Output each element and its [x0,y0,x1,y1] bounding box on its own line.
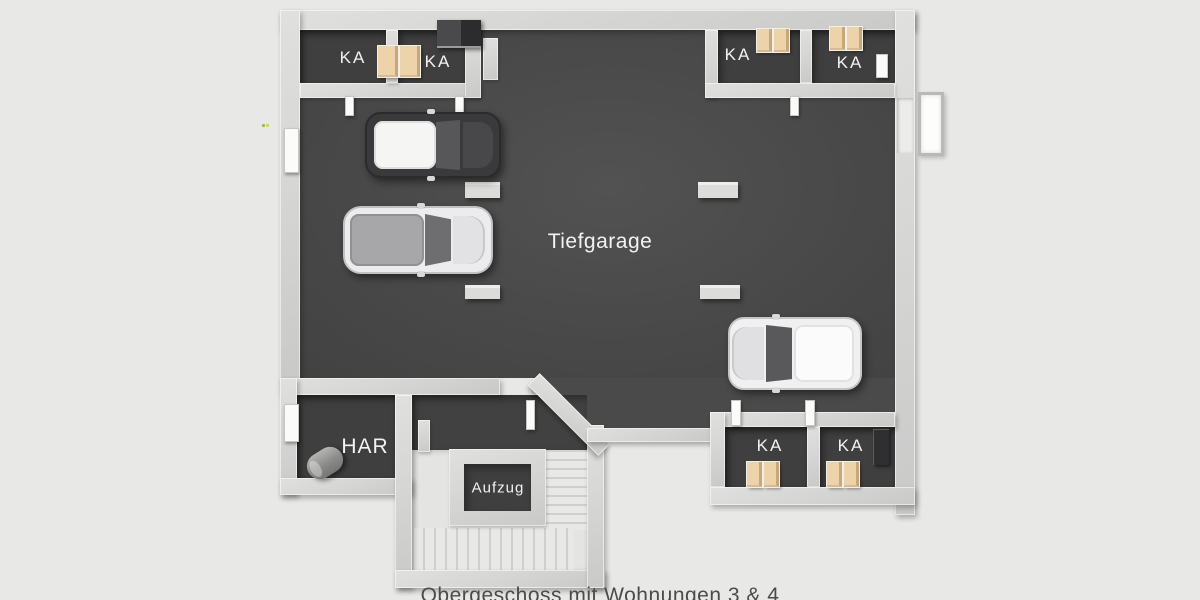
utility-unit [437,20,481,48]
wall-ka-tr-partition [800,30,812,83]
crate [844,462,859,487]
stairs-bottom-run [414,528,574,570]
door-har [284,404,299,442]
car-mirror [417,203,425,208]
parking-divider-2 [698,182,738,198]
room-label-ka-bottom-2: KA [838,436,865,456]
door-ka-tr-2 [876,54,888,78]
garage-gate-opening [897,98,913,153]
room-label-ka-top-right-1: KA [725,45,752,65]
crate [400,46,420,77]
wall-vestibule-jamb [418,420,430,452]
crate [747,462,762,487]
room-label-har: HAR [341,435,388,459]
wall-stair-left [395,395,412,588]
wall-ka-br-bottom [710,487,915,505]
crate [764,462,779,487]
wall-har-top-left-segment [280,378,500,395]
wall-ka-tl-bottom [300,83,481,98]
room-label-aufzug: Aufzug [472,480,525,497]
wall-har-bottom [280,478,412,495]
room-label-ka-top-left-2: KA [425,52,452,72]
utility-unit-panel [461,20,481,46]
car-hood [453,216,485,264]
crate [830,27,845,50]
car-roof [794,325,854,382]
wall-ka-br-left [710,412,725,487]
room-label-ka-top-right-2: KA [837,53,864,73]
car-roof [350,214,424,266]
car-mirror [427,176,435,181]
car-windshield [436,120,460,170]
wall-stub-top-left [483,38,498,80]
crate [757,29,772,52]
crate [378,46,398,77]
crate [774,29,789,52]
floorplan-canvas: KA KA KA KA HAR Aufzug KA KA Tiefgarage … [0,0,1200,600]
garage-gate-panel [918,92,944,156]
wall-right [895,10,915,515]
wall-left [280,10,300,380]
room-label-ka-top-left-1: KA [340,48,367,68]
car-dark-white-roof [365,112,501,178]
car-silver-suv [343,206,493,274]
floor-caption: Obergeschoss mit Wohnungen 3 & 4 [421,584,780,600]
wall-ka-br-partition [807,427,820,487]
stairs-right-run [546,452,587,530]
wall-ka-tr-bottom [705,83,895,98]
wall-top [280,10,915,30]
parking-divider-4 [700,285,740,299]
artifact-dot-green [262,124,265,127]
parking-divider-1 [465,182,500,198]
room-label-ka-bottom-1: KA [757,436,784,456]
wall-garage-bottom-mid [587,428,712,442]
car-mirror [427,109,435,114]
car-mirror [772,314,780,319]
car-hood [463,122,493,168]
car-white [728,317,862,390]
car-hood [732,327,764,380]
car-mirror [772,388,780,393]
artifact-dot-yellow [266,124,269,127]
crate [847,27,862,50]
car-roof [374,121,436,169]
door-vestibule [526,400,535,430]
garage-title: Tiefgarage [548,230,653,254]
parking-divider-3 [465,285,500,299]
door-left-wall [284,128,299,173]
crate [827,462,842,487]
door-ka-tr-1 [790,96,799,116]
car-mirror [417,272,425,277]
door-ka-br-1 [731,400,741,426]
electrical-cabinet [873,429,889,465]
car-windshield [425,214,451,266]
car-windshield [766,325,792,382]
door-ka-br-2 [805,400,815,426]
door-ka-tl-1 [345,96,354,116]
